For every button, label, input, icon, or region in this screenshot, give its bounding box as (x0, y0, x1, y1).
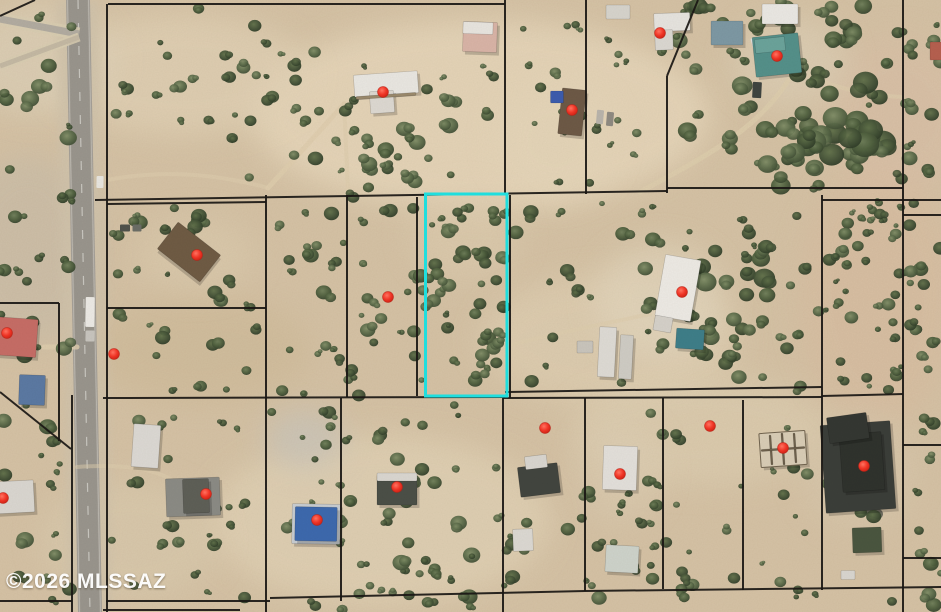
listing-marker[interactable] (859, 461, 870, 472)
listing-marker[interactable] (2, 328, 13, 339)
listing-marker[interactable] (0, 493, 9, 504)
listing-marker[interactable] (383, 292, 394, 303)
listing-marker[interactable] (705, 421, 716, 432)
listing-marker[interactable] (192, 250, 203, 261)
listing-marker[interactable] (312, 515, 323, 526)
listing-marker[interactable] (778, 443, 789, 454)
listing-marker[interactable] (392, 482, 403, 493)
listing-marker[interactable] (540, 423, 551, 434)
listing-marker[interactable] (772, 51, 783, 62)
listing-marker[interactable] (567, 105, 578, 116)
listing-marker[interactable] (201, 489, 212, 500)
listing-marker[interactable] (109, 349, 120, 360)
map-viewport: ©2026 MLSSAZ (0, 0, 941, 612)
listing-marker[interactable] (378, 87, 389, 98)
listing-marker[interactable] (677, 287, 688, 298)
satellite-map[interactable] (0, 0, 941, 612)
sand-texture (0, 0, 941, 612)
listing-marker[interactable] (655, 28, 666, 39)
listing-marker[interactable] (615, 469, 626, 480)
